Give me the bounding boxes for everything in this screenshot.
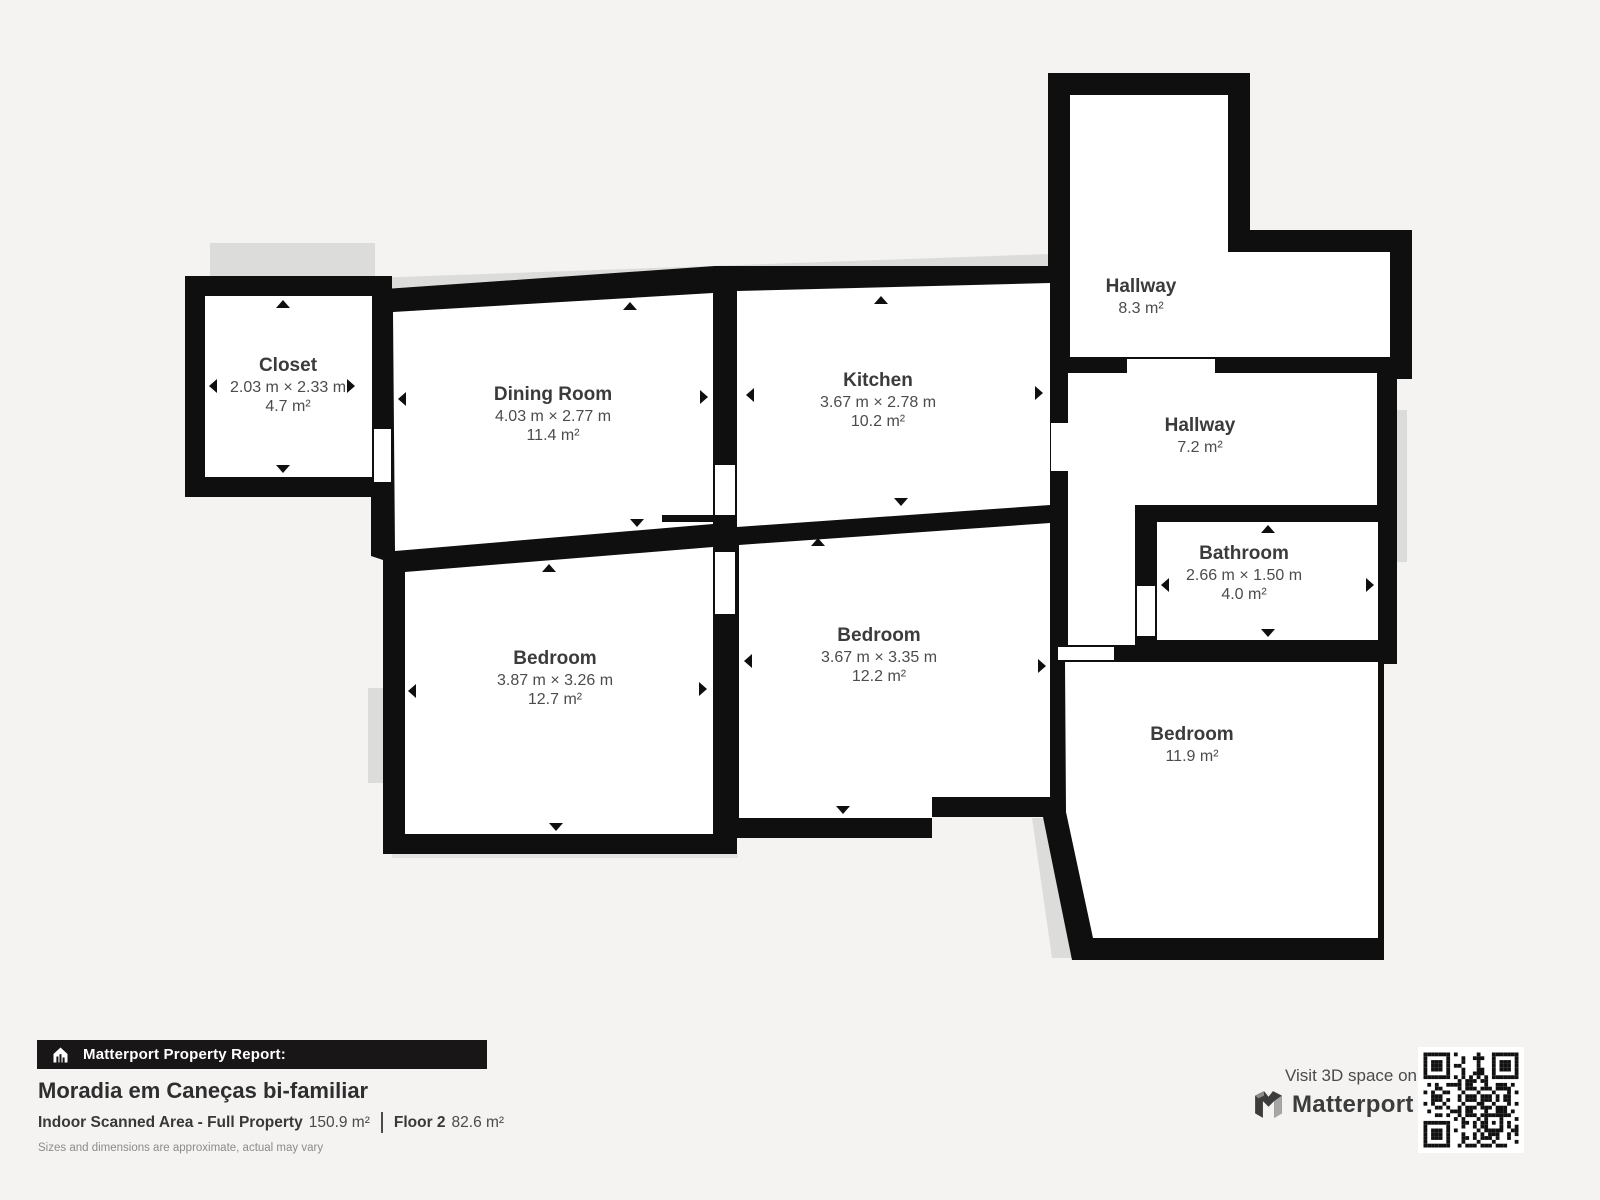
door-kitchen-hallway bbox=[1051, 423, 1071, 471]
room-area-bedroom-mid bbox=[739, 523, 1050, 818]
door-bedrooms bbox=[715, 552, 735, 614]
door-closet-dining bbox=[374, 429, 391, 482]
floor-plan-report-page: Closet 2.03 m × 2.33 m 4.7 m² Dining Roo… bbox=[0, 0, 1600, 1200]
half-wall-stub bbox=[662, 515, 734, 522]
house-report-icon bbox=[51, 1046, 70, 1064]
room-area-bathroom bbox=[1157, 522, 1378, 640]
scanned-area-stat: Indoor Scanned Area - Full Property150.9… bbox=[38, 1114, 370, 1132]
disclaimer-text: Sizes and dimensions are approximate, ac… bbox=[38, 1142, 323, 1154]
room-area-closet bbox=[205, 296, 372, 477]
floor-plan-svg bbox=[0, 0, 1600, 1200]
scanned-area-label: Indoor Scanned Area - Full Property bbox=[38, 1114, 303, 1131]
qr-code bbox=[1418, 1047, 1524, 1153]
floor-area-value: 82.6 m² bbox=[452, 1114, 505, 1131]
area-stats-row: Indoor Scanned Area - Full Property150.9… bbox=[38, 1112, 504, 1133]
floor-stat: Floor 282.6 m² bbox=[394, 1114, 504, 1132]
report-banner-label: Matterport Property Report: bbox=[83, 1046, 286, 1063]
floor-label: Floor 2 bbox=[394, 1114, 446, 1131]
matterport-brand: Matterport bbox=[1254, 1090, 1414, 1119]
room-area-bedroom-right bbox=[1065, 662, 1378, 938]
door-dining-kitchen bbox=[715, 465, 735, 515]
room-area-dining bbox=[393, 293, 713, 551]
stats-divider bbox=[381, 1112, 383, 1133]
scanned-area-value: 150.9 m² bbox=[309, 1114, 370, 1131]
door-hallways bbox=[1127, 359, 1215, 375]
matterport-wordmark: Matterport bbox=[1292, 1091, 1414, 1119]
report-banner: Matterport Property Report: bbox=[37, 1040, 487, 1069]
room-area-kitchen bbox=[737, 283, 1050, 527]
room-area-bedroom-left bbox=[405, 547, 713, 834]
property-title: Moradia em Caneças bi-familiar bbox=[38, 1078, 368, 1104]
door-bedroom-right bbox=[1058, 647, 1114, 660]
matterport-logo-icon bbox=[1254, 1090, 1283, 1119]
door-bathroom bbox=[1137, 586, 1155, 636]
